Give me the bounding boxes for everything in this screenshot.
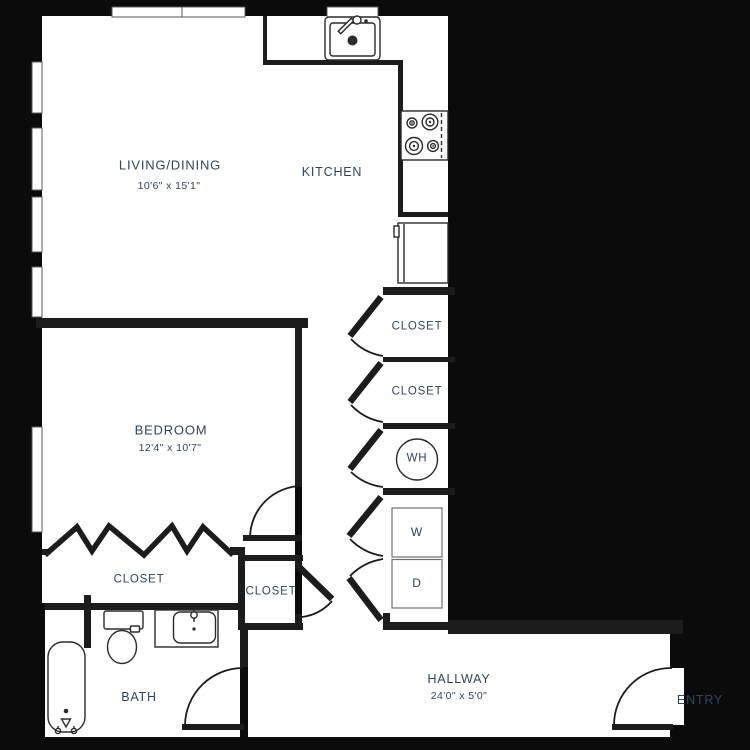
window-top-double: [112, 7, 245, 17]
floor-plan-drawing: [0, 0, 750, 750]
refrigerator-icon: [394, 223, 448, 283]
dryer-label: D: [412, 577, 421, 589]
window-left-4: [32, 267, 42, 317]
closet-divider-wall-3: [383, 488, 455, 495]
kitchen-counter-left-stub: [263, 16, 267, 63]
bath-east-wall: [240, 630, 248, 667]
hall-closet-west-wall: [238, 555, 245, 630]
bath-label: BATH: [121, 691, 157, 704]
stove-icon: [401, 111, 448, 160]
closet-column-top-wall: [383, 287, 455, 295]
bedroom-dimensions: 12'4" x 10'7": [139, 443, 202, 454]
bedroom-label: BEDROOM: [135, 424, 208, 437]
fridge-nook-top-wall: [398, 212, 448, 217]
hall-closet-south-wall: [240, 623, 303, 630]
bathroom-sink-icon: [155, 610, 218, 647]
window-left-1: [32, 62, 42, 113]
water-heater-label: WH: [407, 453, 428, 465]
kitchen-counter-top-edge: [263, 60, 403, 65]
living-dining-label: LIVING/DINING: [119, 159, 221, 172]
window-kitchen-sink: [327, 7, 378, 17]
hallway-dimensions: 24'0" x 5'0": [431, 691, 488, 702]
bath-door-leaf: [182, 724, 244, 730]
bedroom-door-leaf: [243, 535, 302, 541]
hall-closet-north-wall: [238, 555, 303, 561]
kitchen-label: KITCHEN: [302, 166, 362, 179]
bath-north-wall: [45, 603, 240, 610]
hallway-north-wall-right: [448, 620, 683, 634]
closet-divider-wall-2: [383, 423, 455, 429]
closet-hall-label: CLOSET: [246, 586, 297, 598]
hallway-label: HALLWAY: [427, 673, 490, 686]
floor-plan: LIVING/DINING 10'6" x 15'1" KITCHEN BEDR…: [0, 0, 750, 750]
hallway-north-wall-mid: [383, 622, 455, 630]
window-bedroom: [32, 427, 42, 532]
living-bedroom-wall: [36, 318, 308, 328]
closet-divider-wall-1: [383, 357, 455, 362]
washer-label: W: [411, 526, 423, 538]
kitchen-sink-icon: [325, 16, 380, 60]
entry-door-leaf: [612, 724, 673, 730]
closet-bedroom-label: CLOSET: [114, 574, 165, 586]
closet-top-right-label: CLOSET: [392, 321, 443, 333]
window-left-2: [32, 128, 42, 190]
bathtub-icon: [48, 642, 85, 734]
bedroom-east-wall: [295, 323, 302, 485]
corridor-area: [302, 318, 383, 640]
window-left-3: [32, 197, 42, 252]
tub-partition-wall: [84, 595, 91, 648]
entry-label: ENTRY: [677, 694, 723, 707]
living-dining-dimensions: 10'6" x 15'1": [138, 181, 201, 192]
closet-mid-right-label: CLOSET: [392, 386, 443, 398]
